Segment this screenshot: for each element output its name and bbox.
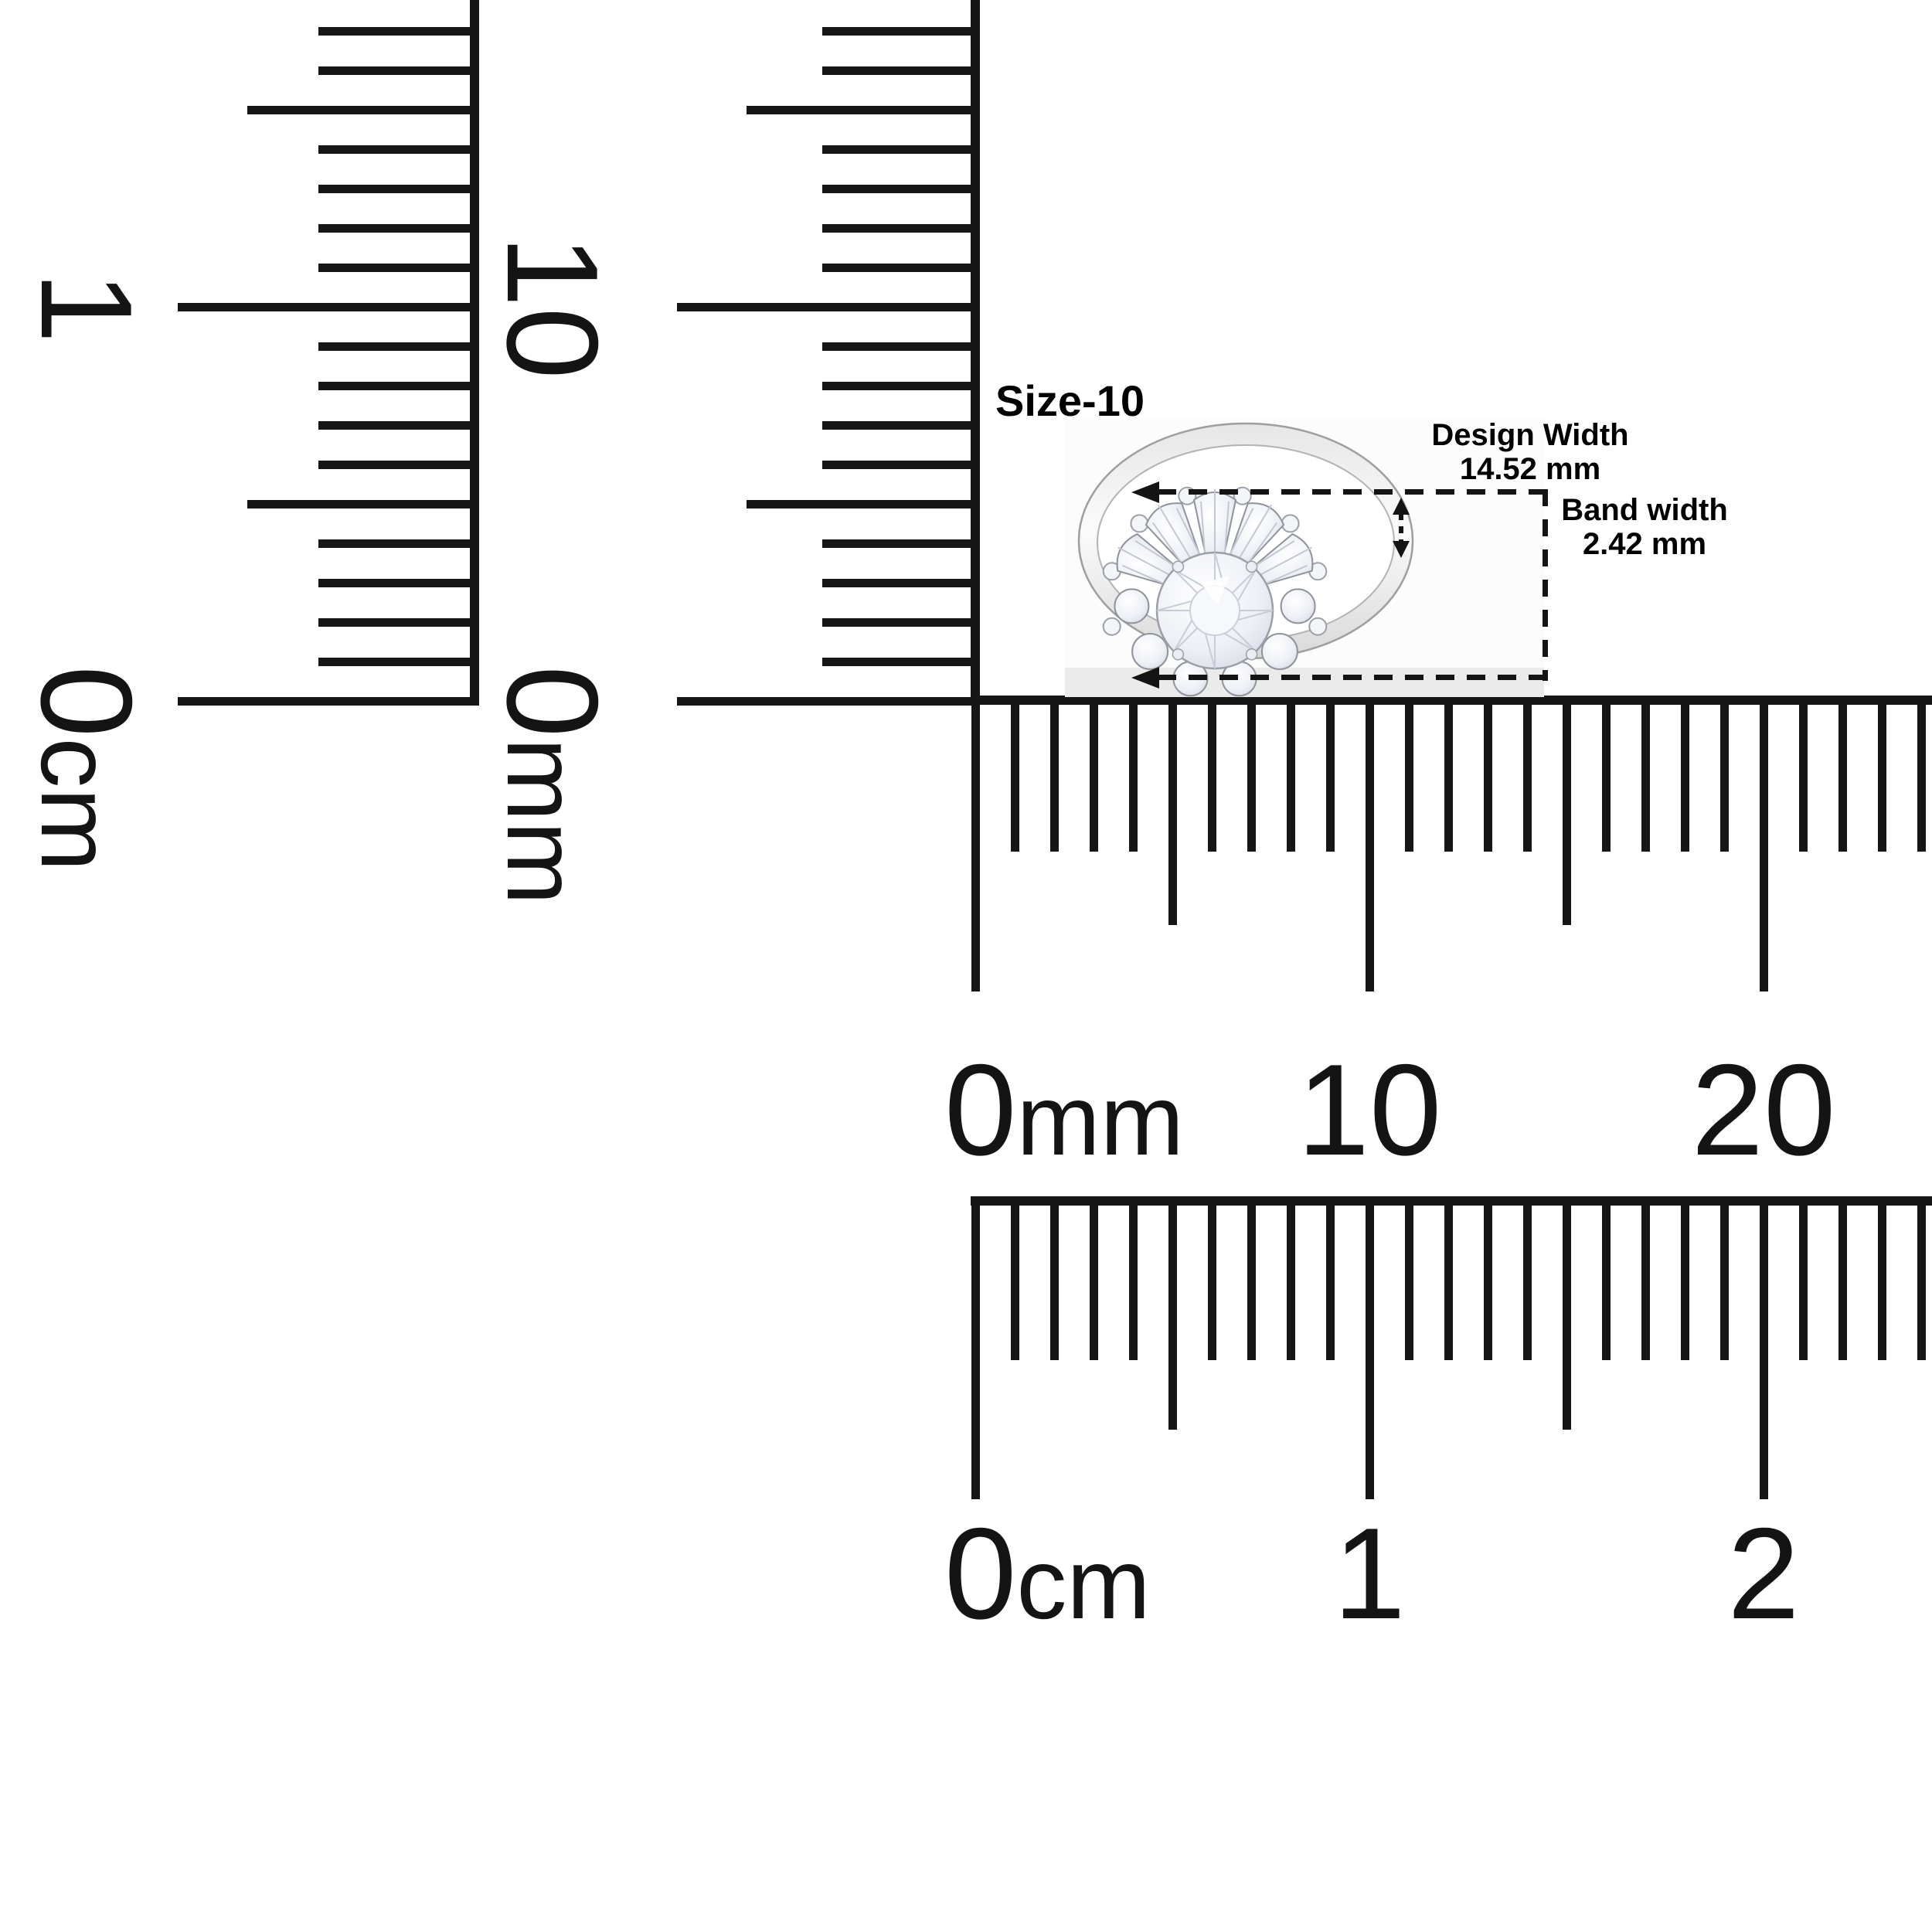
design-width-bottom-line (1158, 675, 1548, 680)
ruler-left-cm-tick (247, 500, 479, 509)
ruler-bottom-mm-tick (1760, 696, 1768, 992)
ruler-bottom-cm-tick (1287, 1196, 1295, 1360)
ruler-bottom-cm-tick (1208, 1196, 1216, 1360)
ruler-bottom-cm-tick (1011, 1196, 1019, 1360)
ruler-number: 10 (480, 235, 625, 379)
bottom-cm-ruler-major-label-2: 2 (1727, 1509, 1799, 1638)
ruler-bottom-mm-tick (1799, 696, 1808, 852)
ruler-bottom-cm-tick (1050, 1196, 1059, 1360)
ruler-unit: mm (1016, 1063, 1184, 1176)
ruler-left-cm-tick (318, 264, 479, 272)
measurement-guide-canvas: 1 0cm 10 0mm 0mm 10 20 0cm 1 2 (0, 0, 1932, 1932)
ruler-left-cm-tick (318, 185, 479, 193)
ruler-left-mm-tick (822, 145, 980, 154)
ruler-bottom-cm-tick (1484, 1196, 1492, 1360)
ruler-bottom-mm-tick (1484, 696, 1492, 852)
ruler-left-mm-tick (822, 264, 980, 272)
ruler-bottom-mm-tick (1405, 696, 1413, 852)
ruler-bottom-cm-tick (1405, 1196, 1413, 1360)
band-width-annotation: Band width 2.42 mm (1561, 493, 1728, 561)
ruler-bottom-mm-tick (1366, 696, 1374, 992)
ruler-bottom-cm-tick (1878, 1196, 1886, 1360)
arrow-left-icon (1131, 667, 1159, 689)
ruler-bottom-cm-tick (1366, 1196, 1374, 1499)
prong (1247, 561, 1257, 572)
design-width-annotation: Design Width 14.52 mm (1431, 418, 1628, 486)
ruler-bottom-cm-tick (1838, 1196, 1847, 1360)
ruler-bottom-mm-tick (1287, 696, 1295, 852)
ruler-left-mm-tick (677, 303, 980, 311)
ruler-left-mm-tick (822, 342, 980, 351)
halo-round-stone (1262, 634, 1298, 669)
design-width-top-line (1158, 489, 1548, 495)
band-width-arrow-shaft (1399, 513, 1403, 543)
ruler-left-cm-tick (318, 421, 479, 430)
ruler-number: 1 (14, 271, 159, 343)
left-mm-ruler-zero-label: 0mm (478, 665, 617, 905)
ruler-bottom-cm-tick (1720, 1196, 1729, 1360)
ruler-bottom-cm-tick (1247, 1196, 1256, 1360)
ruler-left-mm-tick (822, 27, 980, 36)
ruler-bottom-cm-tick (1090, 1196, 1098, 1360)
ruler-unit: cm (20, 737, 133, 871)
ruler-left-cm-tick (318, 27, 479, 36)
band-width-label: Band width (1561, 493, 1728, 527)
ruler-left-mm-tick (822, 66, 980, 75)
ruler-bottom-cm-tick (1563, 1196, 1571, 1430)
ruler-unit: cm (1016, 1527, 1150, 1640)
ring-halo-cluster (1104, 488, 1327, 696)
ruler-number: 0 (14, 665, 159, 737)
halo-accent-stone (1309, 618, 1326, 635)
ruler-left-mm-tick (677, 697, 980, 706)
bottom-cm-ruler-major-label-1: 1 (1333, 1509, 1405, 1638)
ruler-bottom-mm-tick (1168, 696, 1177, 925)
ruler-left-mm-tick (822, 421, 980, 430)
ruler-bottom-cm-tick (1799, 1196, 1808, 1360)
prong (1172, 649, 1183, 660)
ruler-bottom-mm-tick (1444, 696, 1453, 852)
ring-photo (1066, 410, 1422, 711)
ruler-bottom-mm-tick (1681, 696, 1689, 852)
ruler-bottom-mm-tick (1247, 696, 1256, 852)
ruler-left-mm-tick (822, 658, 980, 666)
ruler-bottom-mm-tick (1720, 696, 1729, 852)
left-mm-ruler-major-label: 10 (488, 235, 617, 379)
ruler-left-cm-tick (318, 342, 479, 351)
ruler-bottom-mm-tick (1129, 696, 1138, 852)
ruler-bottom-cm-tick (1444, 1196, 1453, 1360)
ruler-bottom-mm-tick (1011, 696, 1019, 852)
prong (1172, 561, 1183, 572)
halo-round-stone (1281, 589, 1315, 623)
ruler-left-cm-tick (318, 145, 479, 154)
ruler-left-mm-tick (822, 579, 980, 587)
ruler-bottom-mm-tick (1602, 696, 1611, 852)
ruler-bottom-mm-tick (1838, 696, 1847, 852)
halo-round-stone (1114, 589, 1148, 623)
design-width-right-line (1543, 489, 1548, 681)
halo-round-stone (1132, 634, 1168, 669)
ruler-number: 20 (1692, 1037, 1836, 1182)
ruler-bottom-cm-tick (1602, 1196, 1611, 1360)
bottom-mm-ruler-major-label-10: 10 (1298, 1045, 1442, 1175)
arrow-down-icon (1393, 541, 1410, 558)
ruler-bottom-cm-tick (1326, 1196, 1335, 1360)
prong (1247, 649, 1257, 660)
band-width-value: 2.42 mm (1561, 527, 1728, 561)
ruler-bottom-cm-tick (1523, 1196, 1532, 1360)
ruler-left-cm-tick (318, 579, 479, 587)
design-width-label: Design Width (1431, 418, 1628, 452)
ruler-bottom-cm-tick (1168, 1196, 1177, 1430)
halo-accent-stone (1282, 515, 1299, 532)
ruler-left-mm-tick (822, 539, 980, 548)
arrow-left-icon (1131, 481, 1159, 503)
ruler-bottom-cm-tick (1760, 1196, 1768, 1499)
halo-accent-stone (1131, 515, 1148, 532)
ruler-left-cm-tick (318, 658, 479, 666)
ruler-bottom-mm-tick (1326, 696, 1335, 852)
ruler-bottom-mm-tick (1208, 696, 1216, 852)
ruler-left-mm-tick (747, 500, 980, 509)
ruler-left-mm-tick (822, 185, 980, 193)
ruler-left-mm-tick (747, 106, 980, 114)
bottom-mm-ruler-major-label-20: 20 (1692, 1045, 1836, 1175)
ruler-bottom-mm-tick (1523, 696, 1532, 852)
ruler-bottom-mm-tick (1641, 696, 1650, 852)
ruler-number: 10 (1298, 1037, 1442, 1182)
ruler-bottom-mm-tick (1917, 696, 1926, 852)
ruler-bottom-mm-tick (1563, 696, 1571, 925)
halo-accent-stone (1104, 618, 1121, 635)
ruler-bottom-cm-tick (1129, 1196, 1138, 1360)
ruler-bottom-mm-tick (971, 696, 980, 992)
ring-size-label: Size-10 (995, 378, 1145, 424)
ruler-bottom-mm-tick (1090, 696, 1098, 852)
bottom-cm-ruler-zero-label: 0cm (944, 1509, 1151, 1648)
ruler-bottom-cm-tick (971, 1196, 980, 1499)
arrow-up-icon (1393, 498, 1410, 515)
ruler-unit: mm (486, 737, 599, 905)
ruler-left-cm-tick (318, 224, 479, 233)
left-cm-ruler-major-label: 1 (22, 271, 151, 343)
ruler-number: 1 (1333, 1501, 1405, 1646)
ruler-left-mm-tick (822, 618, 980, 627)
ruler-number: 0 (480, 665, 625, 737)
left-cm-ruler-zero-label: 0cm (12, 665, 151, 872)
ruler-left-mm-tick (822, 382, 980, 390)
bottom-mm-ruler-zero-label: 0mm (944, 1045, 1184, 1185)
ruler-bottom-mm-tick (1878, 696, 1886, 852)
ruler-bottom-cm-tick (1917, 1196, 1926, 1360)
ruler-left-cm-tick (318, 66, 479, 75)
ruler-left-cm-tick (318, 382, 479, 390)
ruler-bottom-mm-tick (1050, 696, 1059, 852)
ruler-left-cm-tick (318, 618, 479, 627)
ruler-left-cm-tick (318, 461, 479, 469)
ruler-number: 0 (944, 1037, 1016, 1182)
ruler-left-cm-tick (178, 697, 479, 706)
design-width-value: 14.52 mm (1431, 452, 1628, 486)
ruler-left-cm-tick (318, 539, 479, 548)
ruler-left-mm-tick (822, 224, 980, 233)
ruler-left-cm-tick (178, 303, 479, 311)
ruler-left-cm-tick (247, 106, 479, 114)
ruler-left-mm-tick (822, 461, 980, 469)
ruler-number: 0 (944, 1501, 1016, 1646)
ruler-number: 2 (1727, 1501, 1799, 1646)
ruler-bottom-cm-tick (1641, 1196, 1650, 1360)
ruler-bottom-cm-tick (1681, 1196, 1689, 1360)
